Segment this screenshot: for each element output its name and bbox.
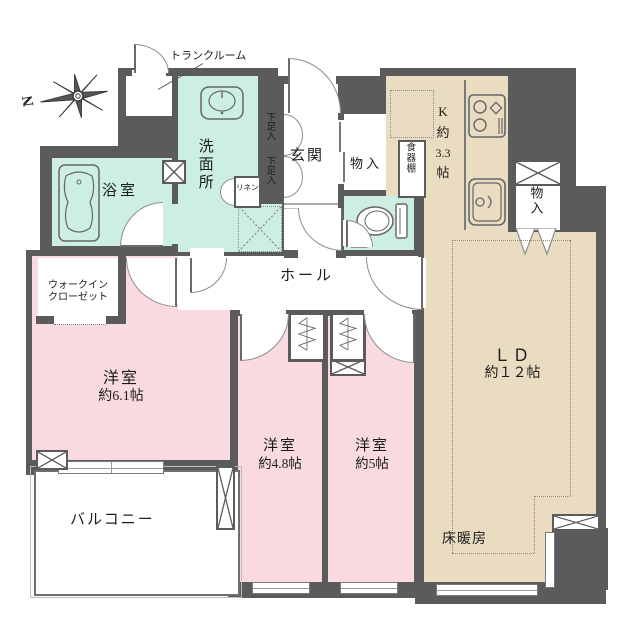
opening-bath [170, 204, 180, 244]
label-trunk: トランクルーム [170, 50, 246, 63]
wall-stub-genkan-right [336, 250, 346, 258]
floor-heating-bottom [452, 553, 534, 554]
window-bed61-balcony [58, 461, 164, 474]
entrance-step-line [284, 203, 338, 205]
label-storage1: 物入 [350, 156, 382, 171]
label-floor-heating: 床暖房 [442, 532, 487, 549]
balcony-outer-line [30, 466, 242, 598]
label-cupboard: 食器棚 [403, 142, 414, 174]
window-ld-south [436, 584, 538, 596]
closet-bed48 [288, 312, 326, 362]
stove-icon [468, 94, 506, 138]
floor-plan: N トランクルーム 洗面所 浴室 ウォークインクローゼット 玄関 下足入 下足入… [0, 0, 640, 640]
label-wic: ウォークインクローゼット [40, 280, 116, 304]
window-bed5-south [340, 582, 398, 594]
kitchen-sink-icon [468, 178, 506, 226]
pipe-shaft-washroom [162, 160, 186, 184]
floor-heating-step-h [534, 496, 570, 497]
label-balcony: バルコニー [70, 512, 155, 530]
pipe-shaft-ld-corner [552, 514, 600, 531]
floor-heating-right [570, 240, 571, 496]
floor-heating-step-v [534, 496, 535, 553]
sliding-door-storage1b [343, 152, 345, 182]
label-storage2: 物入 [528, 186, 543, 216]
label-bed48: 洋室 約4.8帖 [240, 438, 320, 472]
label-bed5: 洋室 約5帖 [336, 438, 408, 472]
floor-heating-top [452, 240, 570, 241]
refrigerator-space [390, 90, 434, 138]
wash-basin-icon [200, 86, 244, 120]
wic-dotted-opening [54, 316, 106, 325]
pipe-shaft-balcony [36, 450, 68, 470]
opening-washroom-hall [190, 248, 224, 258]
window-bed48-south [252, 582, 310, 594]
label-shoe1: 下足入 [263, 112, 274, 141]
opening-genkan-hall [298, 250, 336, 259]
folding-door-storage2 [514, 228, 558, 256]
door-trunk [134, 44, 169, 73]
label-hall: ホール [280, 268, 334, 286]
washer-space [238, 206, 282, 252]
bathtub-icon [58, 164, 100, 242]
label-shoe2: 下足入 [263, 156, 274, 185]
room-trunk [126, 76, 172, 116]
closet-bed5 [330, 312, 366, 362]
pipe-shaft-kitchen [514, 160, 562, 186]
label-washroom: 洗面所 [195, 138, 213, 192]
sliding-door-storage1 [339, 122, 341, 152]
hanger-pipe-icon [336, 315, 360, 353]
label-linen: リネン [236, 184, 259, 193]
compass-icon [30, 66, 114, 126]
label-ld: ＬＤ 約１２帖 [455, 346, 570, 383]
wall-stub-wic-right [118, 254, 126, 324]
label-entrance: 玄関 [290, 148, 324, 166]
floor-heating-left [452, 240, 453, 553]
pillar-slot [545, 532, 555, 588]
hanger-pipe-icon [294, 315, 320, 353]
pipe-shaft-mid [216, 466, 235, 530]
kitchen-counter-line [464, 80, 466, 230]
label-bathroom: 浴室 [102, 183, 138, 201]
label-bed61: 洋室 約6.1帖 [78, 370, 164, 405]
door-entry-main [288, 58, 341, 113]
wall-stub-genkan-left [284, 250, 298, 258]
pillar-bottom-right [552, 528, 608, 590]
label-kitchen: K約 3.3帖 [430, 102, 456, 184]
